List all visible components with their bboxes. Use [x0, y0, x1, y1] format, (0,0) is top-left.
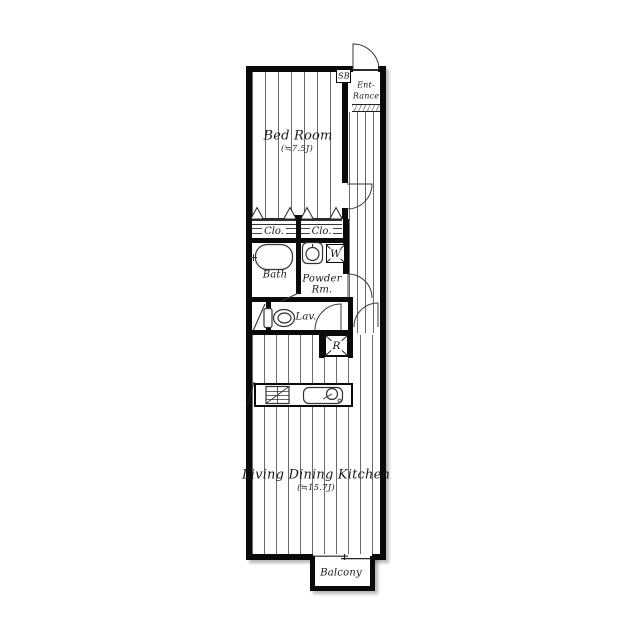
closet-right-label: Clo.	[310, 226, 334, 237]
powder-room-label-line1: Powder	[302, 273, 341, 285]
ldk-size-label: (≒15.7J)	[297, 484, 335, 494]
wall	[296, 243, 301, 294]
bath-label: Bath	[263, 269, 288, 281]
shelf-line	[333, 228, 342, 234]
shelf-line	[301, 228, 310, 234]
balcony-wall	[310, 586, 375, 591]
wall	[246, 297, 353, 302]
balcony-label: Balcony	[320, 567, 362, 579]
ldk-label: Living Dining Kitchen	[242, 469, 390, 484]
room-ldk-floor	[252, 335, 380, 554]
entrance-step	[352, 104, 380, 112]
kitchen-counter	[254, 383, 353, 407]
closet-left-label: Clo.	[262, 226, 286, 237]
wall	[342, 208, 348, 219]
closet-left: Clo.	[252, 224, 296, 238]
entrance-threshold	[353, 69, 378, 71]
pipe-space	[252, 302, 266, 330]
powder-room-label-line2: Rm.	[312, 284, 333, 296]
lavatory-label: Lav.	[295, 311, 316, 323]
entrance-label-line2: Rance	[353, 91, 379, 100]
wall	[266, 302, 271, 333]
bedroom-label: Bed Room	[263, 130, 332, 145]
wall	[246, 554, 313, 560]
closet-right: Clo.	[301, 224, 342, 238]
refrigerator-label: R	[331, 340, 343, 351]
shelf-line	[252, 228, 262, 234]
hallway-floor	[349, 112, 380, 333]
wall	[342, 72, 348, 183]
bedroom-size-label: (≒7.5J)	[281, 145, 313, 155]
floor-plan: Clo. Clo.	[0, 0, 640, 640]
wall	[246, 66, 252, 560]
shoe-box-label: SB	[338, 71, 350, 80]
shelf-line	[286, 228, 296, 234]
wall	[380, 66, 386, 560]
entrance-label-line1: Ent-	[357, 80, 375, 89]
washer-label: W	[328, 248, 343, 259]
